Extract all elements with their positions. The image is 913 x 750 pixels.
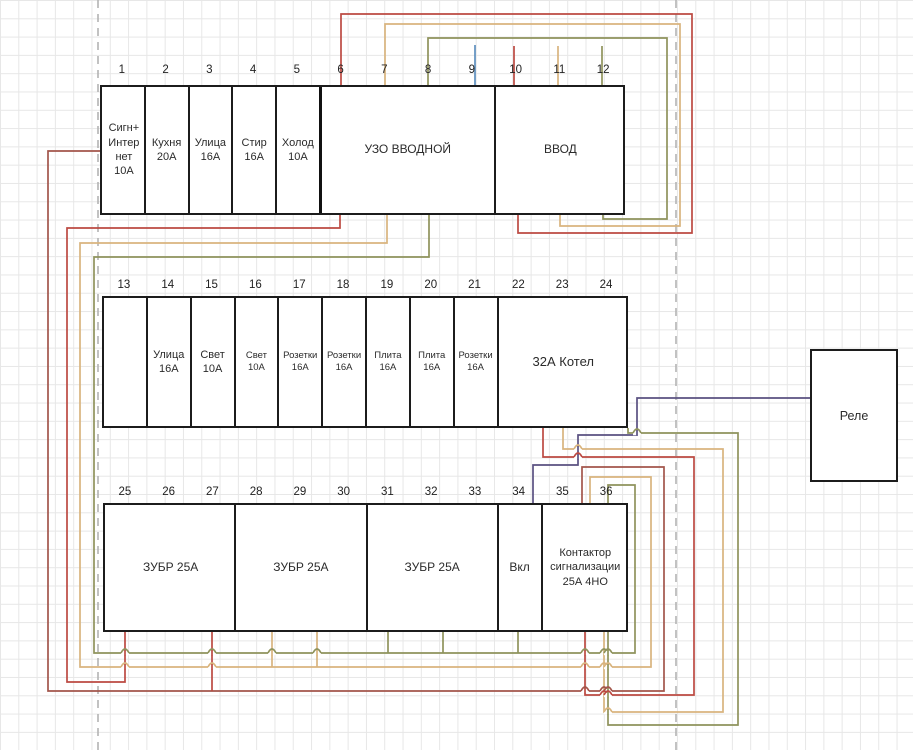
module-number: 25 <box>110 486 140 498</box>
module-number: 26 <box>154 486 184 498</box>
module-label-line: 10А <box>114 164 134 178</box>
breaker-kitchen: Кухня20А <box>144 87 188 213</box>
breaker-light-1: Свет10А <box>190 298 234 426</box>
module-number: 6 <box>326 64 356 76</box>
uzo-main: УЗО ВВОДНОЙ <box>319 87 494 213</box>
relay-label: Реле <box>840 409 869 423</box>
module-number: 29 <box>285 486 315 498</box>
module-number: 31 <box>372 486 402 498</box>
relay-box: Реле <box>810 349 898 482</box>
middle-row: Улица16АСвет10АСвет10АРозетки16АРозетки1… <box>102 296 628 428</box>
module-number: 30 <box>329 486 359 498</box>
module-number: 16 <box>240 279 270 291</box>
wiring-diagram-canvas: Реле Сигн+Интернет10АКухня20АУлица16АСти… <box>0 0 913 750</box>
module-number: 13 <box>109 279 139 291</box>
module-label-line: 10А <box>288 150 308 164</box>
module-label-line: Плита <box>374 350 401 362</box>
module-label-line: 16А <box>336 362 353 374</box>
module-number: 8 <box>413 64 443 76</box>
module-label-line: 16А <box>467 362 484 374</box>
module-label-line: Плита <box>418 350 445 362</box>
module-label-line: 16А <box>159 362 179 376</box>
breaker-street-2: Улица16А <box>146 298 190 426</box>
module-number: 14 <box>153 279 183 291</box>
breaker-sockets-3: Розетки16А <box>453 298 497 426</box>
zubr-3: ЗУБР 25А <box>366 505 497 630</box>
module-number: 12 <box>588 64 618 76</box>
module-label-line: 32А Котел <box>533 354 594 371</box>
top-row: Сигн+Интернет10АКухня20АУлица16АСтир16АХ… <box>100 85 625 215</box>
breaker-stove-1: Плита16А <box>365 298 409 426</box>
contactor-alarm: Контакторсигнализации25А 4НО <box>541 505 629 630</box>
zubr-2: ЗУБР 25А <box>234 505 365 630</box>
module-number: 33 <box>460 486 490 498</box>
module-number: 5 <box>282 64 312 76</box>
module-label-line: Свет <box>200 348 224 362</box>
module-number: 4 <box>238 64 268 76</box>
module-label-line: 16А <box>292 362 309 374</box>
module-label-line: ЗУБР 25А <box>404 560 459 576</box>
breaker-sign-internet: Сигн+Интернет10А <box>102 87 146 213</box>
breaker-light-2: Свет10А <box>234 298 278 426</box>
module-number: 27 <box>197 486 227 498</box>
module-number: 15 <box>197 279 227 291</box>
module-label-line: ЗУБР 25А <box>143 560 198 576</box>
module-label-line: 16А <box>423 362 440 374</box>
module-number: 24 <box>591 279 621 291</box>
module-number: 23 <box>547 279 577 291</box>
module-number: 1 <box>107 64 137 76</box>
input-main: ВВОД <box>494 87 625 213</box>
module-label-line: 10А <box>203 362 223 376</box>
module-label-line: Розетки <box>327 350 361 362</box>
module-label-line: ВВОД <box>544 142 577 158</box>
module-label-line: 16А <box>379 362 396 374</box>
module-label-line: Контактор <box>559 546 611 560</box>
breaker-washer: Стир16А <box>231 87 275 213</box>
breaker-fridge: Холод10А <box>275 87 319 213</box>
breaker-boiler: 32А Котел <box>497 298 629 426</box>
module-number: 19 <box>372 279 402 291</box>
breaker-stove-2: Плита16А <box>409 298 453 426</box>
module-label-line: 20А <box>157 150 177 164</box>
module-label-line: Сигн+ <box>109 121 140 135</box>
module-label-line: Стир <box>242 136 267 150</box>
module-label-line: 25А 4НО <box>563 575 608 589</box>
module-label-line: 16А <box>244 150 264 164</box>
module-number: 35 <box>547 486 577 498</box>
module-label-line: УЗО ВВОДНОЙ <box>364 142 451 158</box>
module-number: 2 <box>151 64 181 76</box>
module-label-line: Улица <box>153 348 184 362</box>
module-label-line: Свет <box>246 350 267 362</box>
module-number: 28 <box>241 486 271 498</box>
module-13-empty <box>104 298 148 426</box>
module-label-line: Улица <box>195 136 226 150</box>
module-label-line: Интер <box>108 136 139 150</box>
module-label-line: ЗУБР 25А <box>273 560 328 576</box>
module-number: 17 <box>284 279 314 291</box>
module-number: 21 <box>460 279 490 291</box>
breaker-sockets-1: Розетки16А <box>277 298 321 426</box>
module-label-line: Вкл <box>509 560 529 576</box>
module-number: 20 <box>416 279 446 291</box>
module-number: 18 <box>328 279 358 291</box>
module-label-line: 10А <box>248 362 265 374</box>
zubr-1: ЗУБР 25А <box>105 505 236 630</box>
bottom-row: ЗУБР 25АЗУБР 25АЗУБР 25АВклКонтакторсигн… <box>103 503 628 632</box>
module-number: 34 <box>504 486 534 498</box>
module-number: 36 <box>591 486 621 498</box>
module-number: 10 <box>501 64 531 76</box>
module-label-line: Розетки <box>283 350 317 362</box>
module-label-line: 16А <box>201 150 221 164</box>
module-label-line: Розетки <box>459 350 493 362</box>
module-label-line: Кухня <box>152 136 181 150</box>
switch-vkl: Вкл <box>497 505 541 630</box>
module-label-line: сигнализации <box>550 560 620 574</box>
breaker-sockets-2: Розетки16А <box>321 298 365 426</box>
module-number: 3 <box>194 64 224 76</box>
module-label-line: нет <box>115 150 132 164</box>
module-number: 7 <box>369 64 399 76</box>
module-number: 22 <box>503 279 533 291</box>
module-number: 32 <box>416 486 446 498</box>
module-number: 11 <box>544 64 574 76</box>
module-number: 9 <box>457 64 487 76</box>
module-label-line: Холод <box>282 136 314 150</box>
breaker-street: Улица16А <box>188 87 232 213</box>
